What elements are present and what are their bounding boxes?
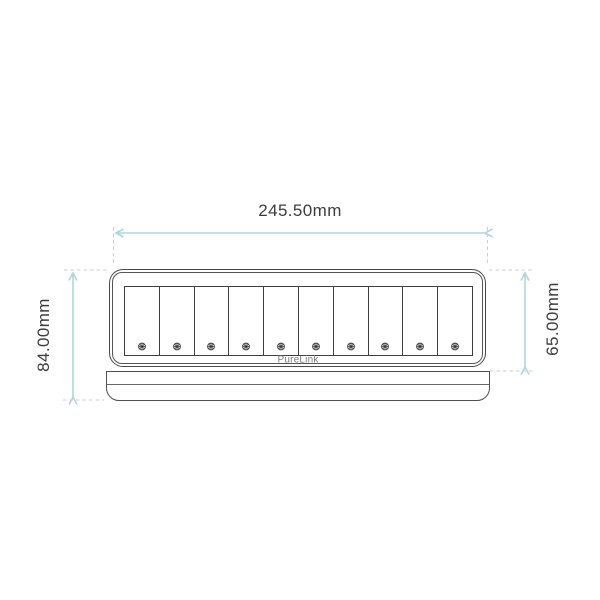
base-seam-line xyxy=(107,384,489,385)
width-dimension-arrow xyxy=(114,227,488,266)
screw-icon xyxy=(172,342,181,351)
module-slot xyxy=(369,287,404,355)
screw-icon xyxy=(451,342,460,351)
module-slot xyxy=(299,287,334,355)
height-overall-dimension-arrow xyxy=(63,270,107,400)
height-overall-dimension-label: 84.00mm xyxy=(34,298,54,372)
height-body-dimension-arrow xyxy=(489,270,533,371)
module-slot xyxy=(438,287,472,355)
brand-label: PureLink xyxy=(277,355,318,366)
module-slot xyxy=(229,287,264,355)
screw-icon xyxy=(346,342,355,351)
module-slot xyxy=(334,287,369,355)
screw-icon xyxy=(137,342,146,351)
module-slot xyxy=(125,287,160,355)
drawing-canvas: 245.50mm 84.00mm 65.00mm PureLink xyxy=(0,0,600,600)
module-slot xyxy=(160,287,195,355)
screw-icon xyxy=(207,342,216,351)
module-slot xyxy=(403,287,438,355)
screw-icon xyxy=(242,342,251,351)
device-base xyxy=(106,371,490,401)
screw-icon xyxy=(311,342,320,351)
module-panel xyxy=(124,286,473,356)
module-slot xyxy=(195,287,230,355)
height-body-dimension-label: 65.00mm xyxy=(543,282,563,356)
screw-icon xyxy=(416,342,425,351)
screw-icon xyxy=(277,342,286,351)
width-dimension-label: 245.50mm xyxy=(258,201,342,221)
module-slot xyxy=(264,287,299,355)
screw-icon xyxy=(381,342,390,351)
